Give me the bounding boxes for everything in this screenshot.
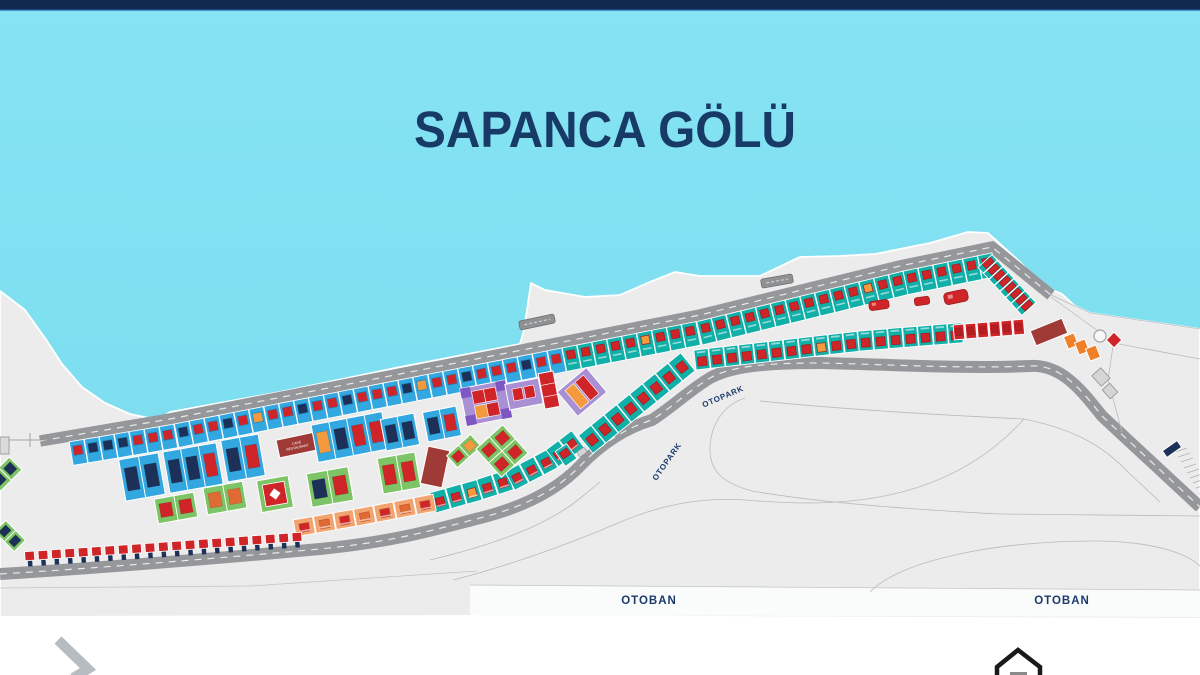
svg-text:OTOBAN: OTOBAN bbox=[1034, 595, 1090, 607]
svg-text:OTOBAN: OTOBAN bbox=[621, 595, 677, 607]
svg-text:SAPANCA GÖLÜ: SAPANCA GÖLÜ bbox=[414, 101, 796, 158]
